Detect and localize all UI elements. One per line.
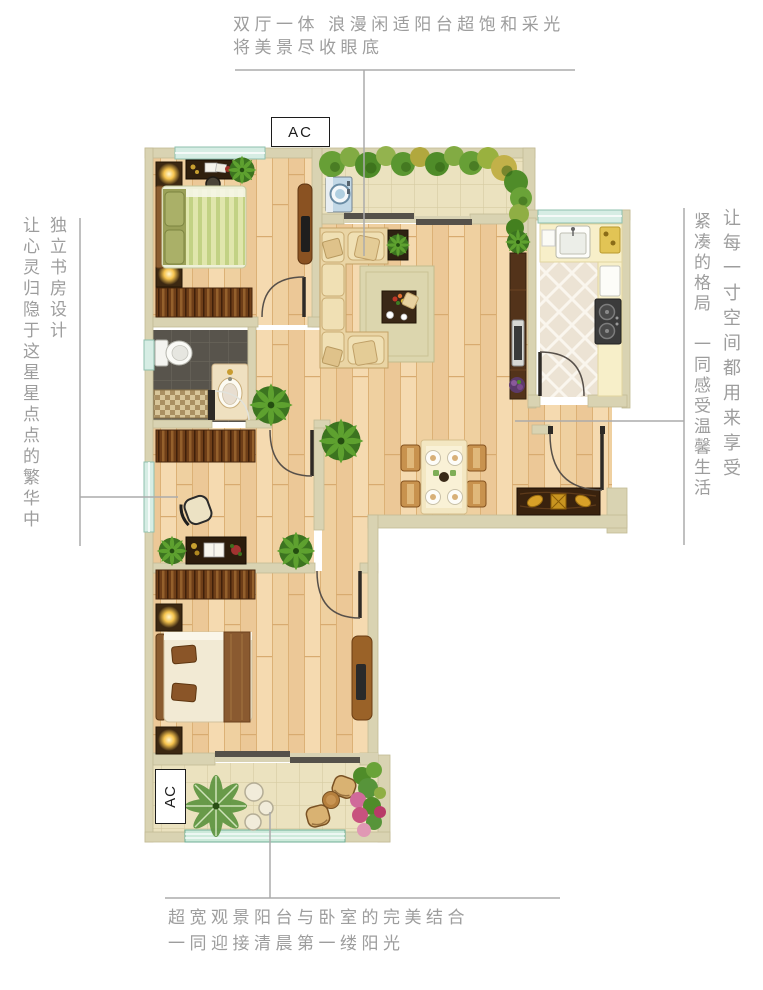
- floorplan-page: 双厅一体 浪漫闲适阳台超饱和采光 将美景尽收眼底 让心灵归隐于这星星点点的繁华中…: [0, 0, 763, 990]
- pillow: [322, 238, 343, 259]
- right-callout-inner: 紧凑的格局 一同感受温馨生活: [692, 212, 709, 499]
- balcony-chair: [245, 783, 263, 801]
- sink: [556, 226, 590, 258]
- plant: [249, 383, 292, 426]
- bed-runner: [224, 632, 250, 722]
- plant: [386, 233, 410, 257]
- ac-unit-label-top: AC: [271, 117, 330, 147]
- plant: [319, 419, 364, 464]
- pillow: [165, 230, 184, 264]
- living-balcony-slider: [344, 213, 414, 219]
- right-callout-outer: 让每一寸空间都用来享受: [722, 208, 740, 483]
- tv: [301, 216, 310, 252]
- plant: [157, 536, 187, 566]
- bedroom2-bed: [156, 632, 252, 722]
- coffee-table: [382, 291, 419, 323]
- counter-item: [542, 230, 555, 246]
- washing-machine: [326, 177, 352, 212]
- top-callout-line2: 将美景尽收眼底: [233, 36, 565, 59]
- balcony-chair: [245, 814, 261, 830]
- ac-unit-label-bottom: AC: [155, 769, 186, 824]
- bath-mat: [154, 390, 208, 418]
- stove: [595, 299, 621, 344]
- bottom-callout: 超宽观景阳台与卧室的完美结合 一同迎接清晨第一缕阳光: [168, 905, 469, 957]
- bedroom1-window: [175, 147, 265, 159]
- floorplan-graphic: [0, 0, 763, 990]
- ac-top-text: AC: [288, 124, 313, 141]
- wardrobe: [156, 288, 252, 317]
- balcony-chair: [259, 801, 273, 815]
- bottom-balcony-window: [185, 830, 345, 842]
- left-callout-outer: 让心灵归隐于这星星点点的繁华中: [21, 216, 38, 531]
- kitchen-window: [538, 210, 622, 223]
- wardrobe: [156, 570, 255, 599]
- entry-console: [517, 488, 600, 515]
- pillow: [171, 645, 196, 664]
- top-callout: 双厅一体 浪漫闲适阳台超饱和采光 将美景尽收眼底: [233, 13, 565, 59]
- lamp: [158, 163, 180, 185]
- plant: [228, 156, 257, 185]
- study-desk: [186, 537, 246, 564]
- plant-purple: [509, 377, 525, 393]
- bedroom1-bed: [156, 186, 246, 268]
- top-callout-line1: 双厅一体 浪漫闲适阳台超饱和采光: [233, 13, 565, 36]
- bathroom-window: [144, 340, 154, 370]
- bottom-callout-line1: 超宽观景阳台与卧室的完美结合: [168, 905, 469, 931]
- toilet: [155, 340, 192, 366]
- wardrobe: [156, 430, 255, 462]
- left-callout-inner: 独立书房设计: [48, 216, 65, 342]
- parasol: [185, 775, 247, 837]
- plant: [277, 532, 315, 570]
- lamp: [158, 729, 180, 751]
- lamp: [158, 606, 180, 628]
- ac-bottom-text: AC: [162, 785, 179, 808]
- pillow: [165, 192, 184, 226]
- bedroom2-balcony-slider: [215, 751, 290, 757]
- cushion: [352, 340, 377, 365]
- cutting-board: [600, 227, 620, 253]
- pillow: [322, 346, 343, 367]
- appliance: [600, 266, 620, 296]
- vanity: [212, 364, 248, 420]
- cushion: [354, 235, 380, 261]
- plant: [505, 229, 531, 255]
- pillow: [171, 683, 196, 702]
- tv: [356, 664, 366, 700]
- bottom-callout-line2: 一同迎接清晨第一缕阳光: [168, 931, 469, 957]
